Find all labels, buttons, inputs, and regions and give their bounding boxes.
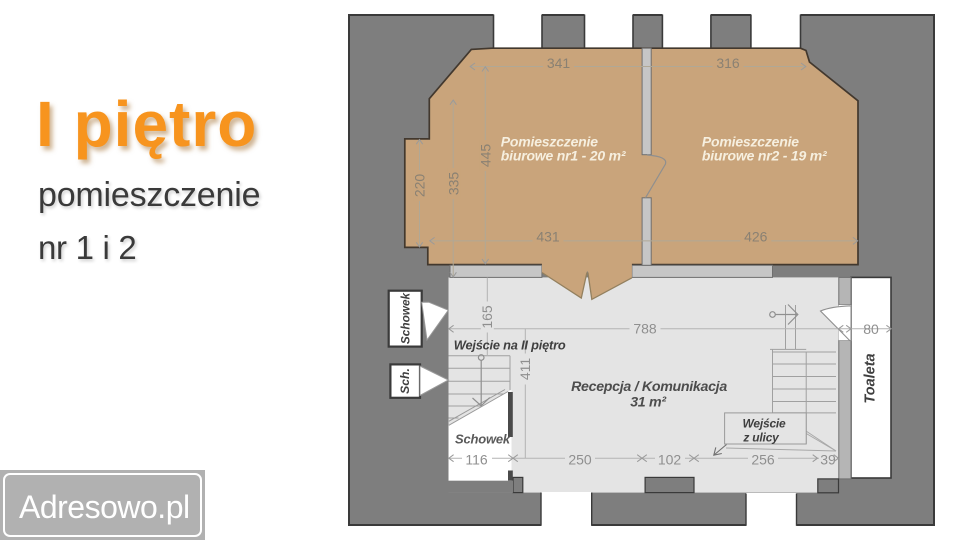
svg-text:Schowek: Schowek [455, 432, 511, 447]
svg-text:39: 39 [820, 452, 836, 468]
svg-text:426: 426 [744, 229, 768, 245]
svg-text:Schowek: Schowek [399, 291, 413, 344]
svg-text:z ulicy: z ulicy [742, 431, 780, 445]
svg-text:165: 165 [479, 305, 495, 329]
svg-text:80: 80 [863, 321, 879, 337]
svg-text:431: 431 [536, 229, 560, 245]
svg-text:220: 220 [412, 174, 428, 198]
svg-text:116: 116 [465, 452, 488, 468]
svg-text:102: 102 [658, 452, 682, 468]
svg-text:Toaleta: Toaleta [863, 353, 879, 403]
svg-text:biurowe nr2 - 19 m²: biurowe nr2 - 19 m² [702, 148, 827, 164]
svg-text:Wejście: Wejście [742, 417, 786, 431]
svg-text:31 m²: 31 m² [630, 395, 667, 411]
svg-text:Sch.: Sch. [398, 368, 412, 394]
svg-text:250: 250 [568, 452, 592, 468]
svg-text:341: 341 [547, 55, 571, 71]
svg-text:335: 335 [446, 172, 462, 196]
svg-text:788: 788 [633, 321, 657, 337]
svg-text:Recepcja / Komunikacja: Recepcja / Komunikacja [571, 379, 727, 395]
svg-text:445: 445 [478, 144, 494, 168]
svg-text:411: 411 [517, 358, 533, 381]
svg-text:Wejście na II piętro: Wejście na II piętro [454, 338, 566, 353]
svg-text:316: 316 [716, 55, 740, 71]
svg-text:256: 256 [751, 452, 775, 468]
svg-text:biurowe nr1 - 20 m²: biurowe nr1 - 20 m² [501, 148, 626, 164]
